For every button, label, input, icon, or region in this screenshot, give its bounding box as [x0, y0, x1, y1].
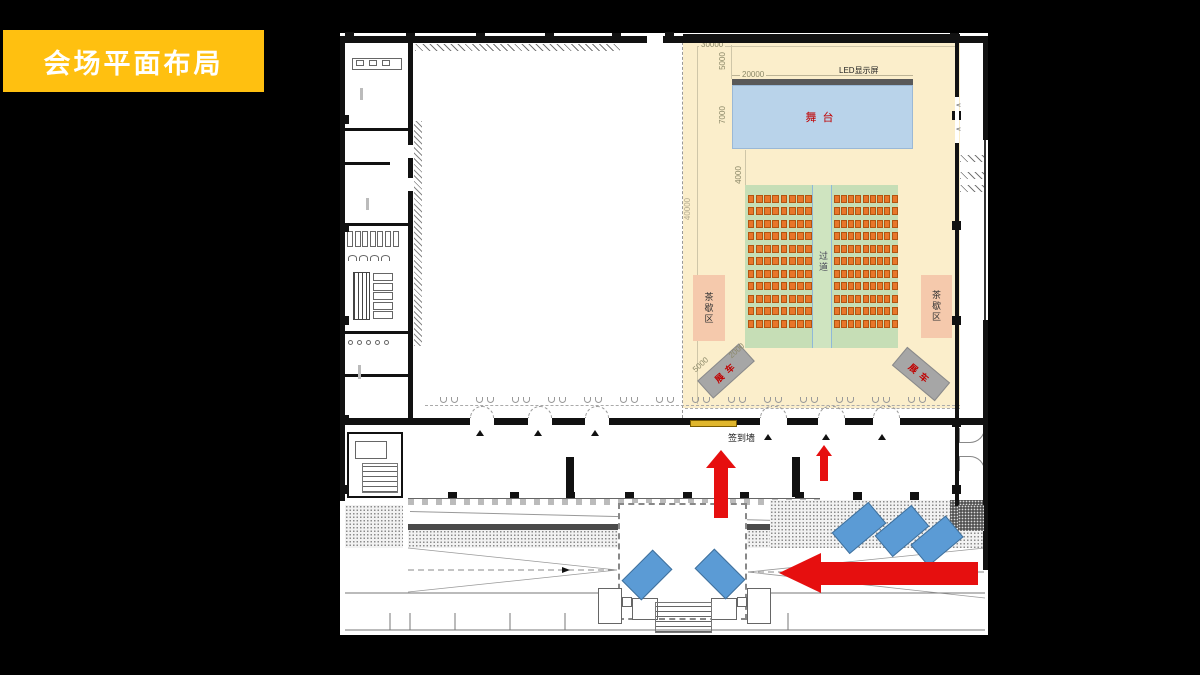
floor-plan: LED显示屏 舞台 30000 20000 5000 7000 4000 400… — [340, 33, 988, 635]
right-window-hatch-3 — [960, 185, 984, 192]
vestibule-post-right — [737, 597, 747, 607]
entrance-steps — [655, 602, 712, 633]
vestibule-post-left — [622, 597, 632, 607]
right-door-chevron-1: ∧ — [955, 102, 963, 107]
right-outer-wall-top — [983, 36, 988, 140]
flow-arrow-left-body — [821, 562, 978, 585]
page-title: 会场平面布局 — [44, 42, 224, 81]
entrance-wing-left — [598, 588, 622, 624]
entrance-step-block-right — [711, 598, 737, 620]
right-outer-wall-bottom — [983, 320, 988, 570]
flow-arrow-left-head — [779, 553, 821, 593]
right-door-chevron-2: ∧ — [955, 126, 963, 131]
right-window-hatch-1 — [960, 155, 984, 162]
right-dark-block — [958, 505, 984, 531]
flow-arrow-up-small-body — [820, 456, 828, 481]
flow-arrow-up-small-head — [816, 445, 832, 456]
title-banner: 会场平面布局 — [3, 30, 264, 92]
entrance-wing-right — [747, 588, 771, 624]
slide: 会场平面布局 LED显示屏 舞台 30000 20000 5000 7000 4… — [0, 0, 1200, 675]
flow-arrow-up-main-head — [706, 450, 736, 468]
right-window-hatch-2 — [960, 172, 984, 179]
flow-arrow-up-main-body — [714, 468, 728, 518]
right-outer-wall-mid — [984, 140, 986, 320]
